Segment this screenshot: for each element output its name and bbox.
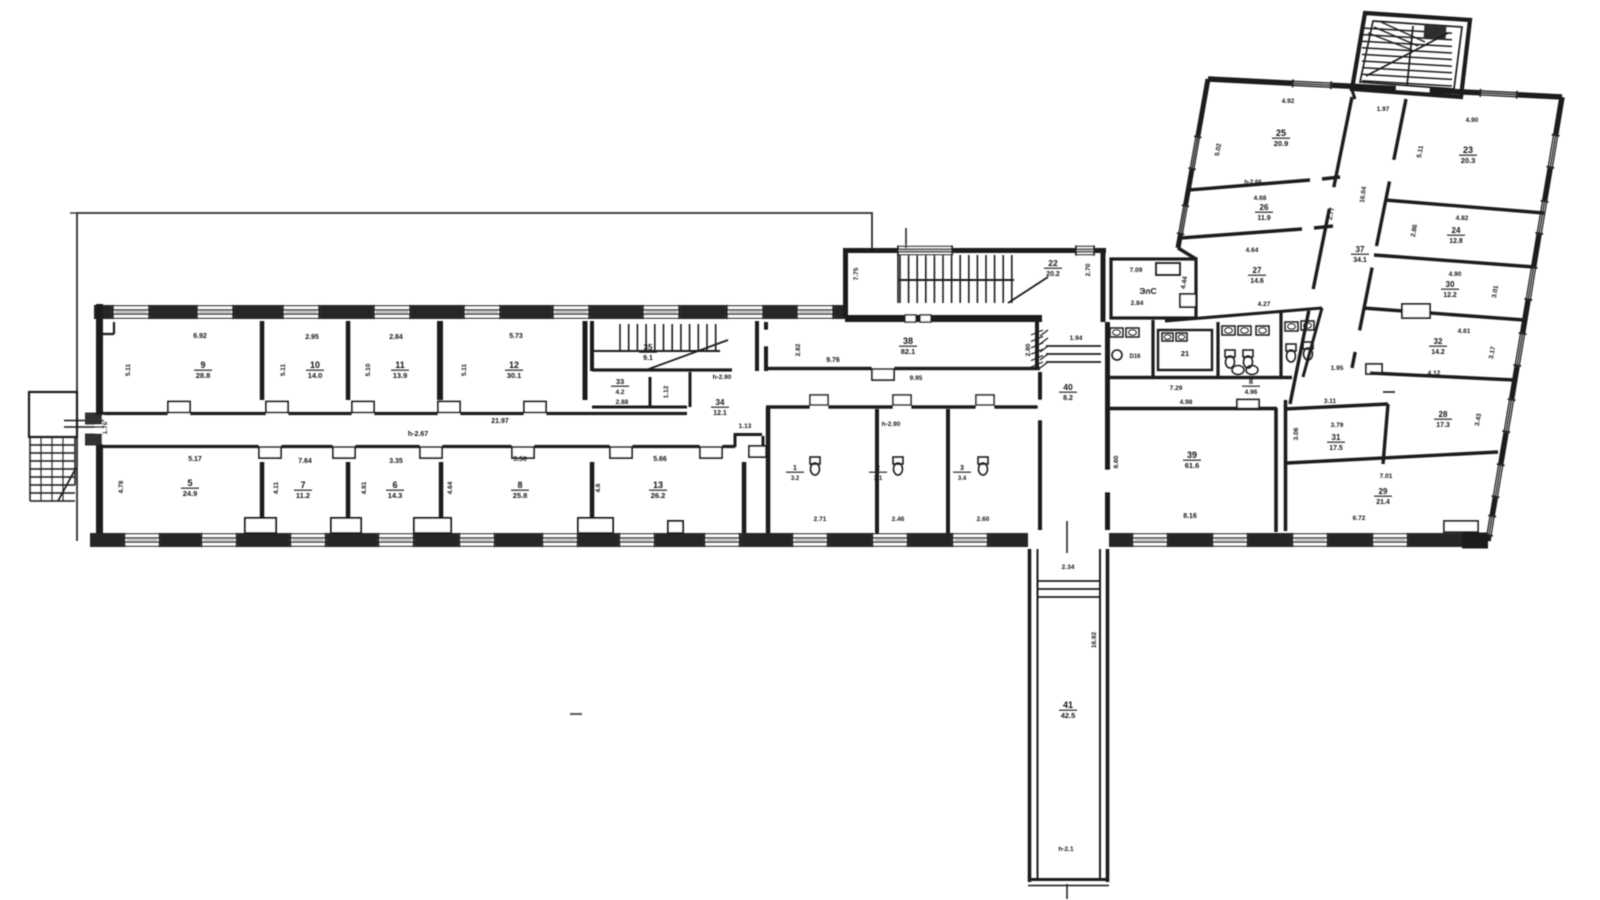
svg-text:3.06: 3.06 [1293, 427, 1300, 440]
svg-text:26: 26 [1260, 203, 1269, 212]
svg-text:3.79: 3.79 [1331, 422, 1344, 429]
svg-text:13.9: 13.9 [393, 371, 408, 380]
svg-text:4.61: 4.61 [1458, 328, 1471, 335]
svg-text:11.9: 11.9 [1257, 215, 1270, 222]
svg-text:3.35: 3.35 [389, 458, 403, 465]
svg-text:4.27: 4.27 [1258, 301, 1271, 308]
svg-text:8.16: 8.16 [1183, 513, 1197, 520]
svg-text:3.2: 3.2 [791, 476, 800, 482]
svg-text:24.9: 24.9 [183, 489, 198, 498]
svg-text:17.5: 17.5 [1329, 445, 1343, 452]
svg-text:16.92: 16.92 [1091, 631, 1098, 648]
svg-text:41: 41 [1063, 700, 1073, 710]
svg-text:38: 38 [903, 336, 913, 346]
svg-text:5: 5 [187, 478, 192, 488]
svg-text:37: 37 [1356, 245, 1365, 254]
svg-text:h-2.90: h-2.90 [882, 421, 901, 428]
svg-text:1.97: 1.97 [1377, 106, 1390, 113]
svg-text:30: 30 [1446, 280, 1455, 289]
svg-text:9.95: 9.95 [910, 375, 923, 382]
svg-text:14.3: 14.3 [388, 491, 403, 500]
svg-text:3.4: 3.4 [958, 476, 967, 482]
svg-text:6: 6 [392, 480, 397, 490]
svg-text:4.81: 4.81 [361, 481, 368, 494]
svg-text:28: 28 [1439, 410, 1448, 419]
svg-text:1.12: 1.12 [663, 385, 670, 398]
svg-text:11: 11 [395, 360, 405, 370]
svg-text:82.1: 82.1 [901, 347, 916, 356]
svg-text:4.78: 4.78 [118, 480, 125, 493]
svg-text:28.8: 28.8 [196, 371, 211, 380]
svg-text:25.8: 25.8 [513, 491, 528, 500]
svg-text:12.2: 12.2 [1443, 292, 1457, 299]
svg-text:27: 27 [1253, 266, 1262, 275]
svg-text:4.92: 4.92 [1282, 98, 1295, 105]
svg-text:2.95: 2.95 [305, 334, 319, 341]
svg-text:25: 25 [1276, 128, 1286, 138]
svg-text:7: 7 [300, 480, 305, 490]
svg-text:8: 8 [517, 480, 522, 490]
svg-text:31: 31 [1332, 433, 1341, 442]
svg-text:7.01: 7.01 [1380, 473, 1393, 480]
svg-text:2.70: 2.70 [1085, 263, 1092, 276]
svg-text:1: 1 [793, 465, 797, 472]
svg-text:9.76: 9.76 [826, 357, 840, 364]
svg-text:2.84: 2.84 [1131, 300, 1144, 307]
svg-text:1.13: 1.13 [739, 423, 752, 430]
svg-text:4.64: 4.64 [1246, 247, 1259, 254]
svg-text:7.75: 7.75 [853, 267, 860, 280]
svg-text:21.4: 21.4 [1376, 499, 1390, 506]
svg-text:61.6: 61.6 [1185, 461, 1200, 470]
svg-text:h-2.90: h-2.90 [713, 374, 732, 381]
svg-text:20.3: 20.3 [1461, 156, 1476, 165]
svg-text:h-2.66: h-2.66 [1244, 180, 1262, 186]
svg-text:1.76: 1.76 [102, 421, 109, 434]
svg-text:5.11: 5.11 [280, 363, 287, 376]
svg-text:5.73: 5.73 [509, 333, 523, 340]
svg-text:2.82: 2.82 [795, 343, 802, 356]
svg-text:24: 24 [1452, 226, 1461, 235]
svg-text:2.34: 2.34 [1062, 564, 1075, 571]
svg-text:4.82: 4.82 [1456, 215, 1469, 222]
svg-text:39: 39 [1187, 450, 1197, 460]
svg-text:12: 12 [509, 360, 519, 370]
svg-text:17.3: 17.3 [1436, 422, 1450, 429]
svg-text:3.11: 3.11 [1324, 398, 1337, 405]
svg-text:29: 29 [1379, 487, 1388, 496]
svg-text:4.11: 4.11 [273, 481, 280, 494]
svg-text:32: 32 [1434, 337, 1443, 346]
svg-text:6.60: 6.60 [1113, 455, 1120, 468]
svg-text:8.2: 8.2 [1063, 395, 1073, 402]
svg-text:4.12: 4.12 [1428, 370, 1441, 377]
svg-text:5.17: 5.17 [188, 456, 202, 463]
svg-text:12.1: 12.1 [713, 410, 727, 417]
svg-text:13: 13 [653, 480, 663, 490]
svg-text:14.2: 14.2 [1431, 349, 1445, 356]
svg-text:4.6: 4.6 [595, 483, 602, 492]
svg-text:4.98: 4.98 [1180, 399, 1193, 406]
svg-text:20.2: 20.2 [1046, 271, 1060, 278]
svg-text:7.09: 7.09 [1130, 267, 1143, 274]
svg-text:5.10: 5.10 [365, 363, 372, 376]
svg-text:35: 35 [644, 343, 653, 352]
svg-text:ЭлС: ЭлС [1139, 286, 1156, 296]
svg-text:34.1: 34.1 [1353, 257, 1367, 264]
svg-text:2.60: 2.60 [977, 516, 990, 523]
svg-text:26.2: 26.2 [651, 491, 666, 500]
svg-text:2.88: 2.88 [616, 399, 629, 406]
svg-text:5.11: 5.11 [125, 363, 132, 376]
svg-text:2.46: 2.46 [892, 516, 905, 523]
svg-text:30.1: 30.1 [507, 371, 522, 380]
svg-text:14.6: 14.6 [1250, 278, 1264, 285]
svg-text:5.11: 5.11 [461, 363, 468, 376]
svg-text:4.64: 4.64 [447, 481, 454, 494]
svg-text:9.1: 9.1 [643, 355, 653, 362]
svg-text:D16: D16 [1129, 354, 1141, 360]
svg-text:23: 23 [1463, 145, 1473, 155]
svg-text:7.64: 7.64 [298, 458, 312, 465]
svg-text:10: 10 [310, 360, 320, 370]
svg-text:21: 21 [1181, 349, 1189, 358]
svg-text:6.92: 6.92 [193, 333, 207, 340]
svg-text:2.71: 2.71 [814, 516, 827, 523]
svg-text:42.5: 42.5 [1061, 711, 1076, 720]
svg-text:4.2: 4.2 [615, 389, 624, 396]
svg-text:2.80: 2.80 [1025, 343, 1032, 356]
svg-text:1.94: 1.94 [1070, 335, 1083, 342]
svg-text:4.96: 4.96 [1245, 389, 1258, 396]
svg-text:34: 34 [716, 398, 725, 407]
svg-text:20.9: 20.9 [1274, 139, 1289, 148]
svg-text:4.90: 4.90 [1466, 117, 1479, 124]
svg-text:4.90: 4.90 [1449, 271, 1462, 278]
svg-text:5.66: 5.66 [653, 456, 667, 463]
svg-text:14.0: 14.0 [308, 371, 323, 380]
svg-text:5.56: 5.56 [513, 456, 527, 463]
svg-text:6.72: 6.72 [1353, 515, 1366, 522]
svg-text:9: 9 [200, 360, 205, 370]
svg-text:8: 8 [1249, 377, 1253, 386]
svg-text:3: 3 [960, 465, 964, 472]
svg-text:40: 40 [1063, 382, 1073, 392]
svg-text:4.68: 4.68 [1254, 195, 1267, 202]
svg-text:12.8: 12.8 [1449, 238, 1463, 245]
svg-text:21.97: 21.97 [491, 418, 509, 425]
svg-text:1.95: 1.95 [1331, 365, 1344, 372]
svg-text:7.29: 7.29 [1170, 385, 1183, 392]
svg-text:33: 33 [616, 377, 624, 386]
svg-text:2.84: 2.84 [389, 334, 403, 341]
svg-text:22: 22 [1048, 258, 1058, 268]
svg-text:h-2.1: h-2.1 [1058, 846, 1074, 853]
svg-text:11.2: 11.2 [296, 491, 310, 500]
svg-text:h-2.67: h-2.67 [408, 431, 428, 438]
